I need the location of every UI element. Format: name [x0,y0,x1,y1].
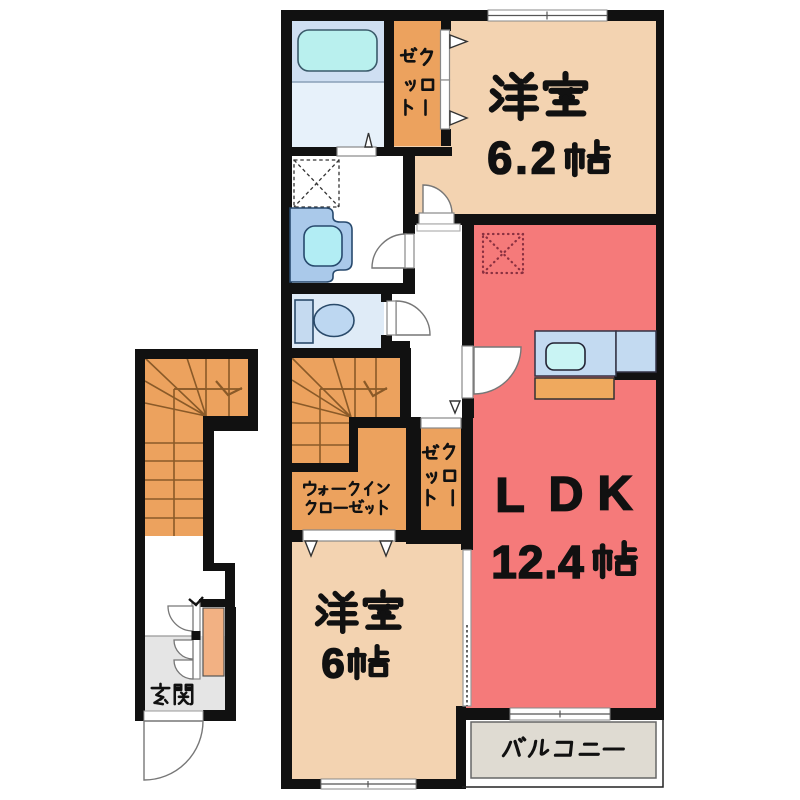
svg-text:L: L [495,470,524,523]
svg-text:6.2: 6.2 [487,133,559,184]
svg-text:12.4: 12.4 [491,536,585,588]
svg-text:D: D [549,469,584,522]
svg-text:6: 6 [321,640,344,687]
svg-text:K: K [598,468,633,521]
